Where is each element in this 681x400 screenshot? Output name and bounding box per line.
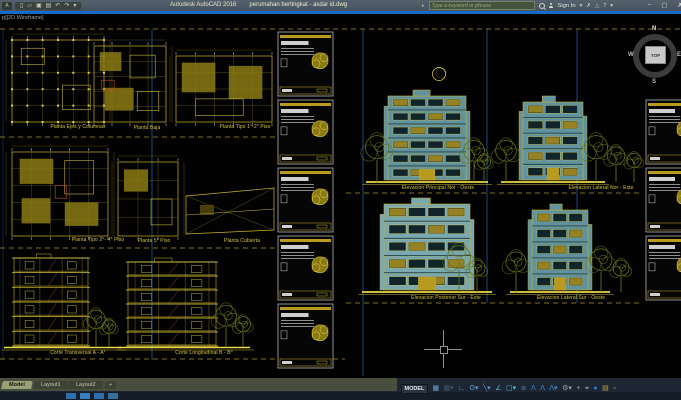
ribbon-strip: [0, 11, 681, 14]
grid-icon[interactable]: ▦: [432, 385, 439, 392]
user-icon: [549, 3, 554, 8]
infocenter-toggle-icon[interactable]: ▸: [422, 3, 425, 9]
save-icon[interactable]: ▣: [36, 2, 42, 10]
window-controls: – ▢ ✗: [648, 1, 680, 9]
window-title: Autodesk AutoCAD 2016perumahan bertingka…: [170, 2, 347, 8]
drawing-label: Planta Ejes y Columnas: [36, 124, 120, 130]
isolate-objects-icon[interactable]: ⌖: [585, 385, 589, 392]
drawing-label: Elevacion Lateral Nor - Este: [558, 185, 644, 191]
drawing-label: Elevacion Lateral Sur - Oeste: [526, 295, 616, 301]
document-title: perumahan bertingkat - asdar id.dwg: [249, 2, 347, 8]
search-icon[interactable]: [539, 3, 545, 9]
model-space-button[interactable]: MODEL: [401, 384, 428, 394]
plot-icon[interactable]: ▤: [46, 2, 52, 10]
taskbar-tile: [80, 393, 90, 399]
annotation-autoscale-icon[interactable]: Λ: [540, 385, 545, 392]
viewcube-east[interactable]: E: [677, 52, 681, 58]
workspace-switching-icon[interactable]: ⚙▾: [562, 385, 572, 392]
annotation-visibility-icon[interactable]: Λ: [531, 385, 536, 392]
object-snap-icon[interactable]: ▢▾: [506, 385, 516, 392]
tab-model[interactable]: Model: [1, 381, 33, 389]
viewcube-north[interactable]: N: [652, 26, 656, 32]
tab-layout1[interactable]: Layout1: [33, 381, 68, 389]
drawing-label: Planta Tipo 1°-2° Piso: [203, 124, 287, 130]
hardware-acceleration-icon[interactable]: ●: [593, 385, 597, 392]
object-snap-tracking-icon[interactable]: ∠: [495, 385, 501, 392]
crosshair-pickbox: [440, 346, 448, 354]
status-bar: Model Layout1 Layout2 + MODEL ▦ ▦▾ ∟ ʘ▾ …: [0, 378, 681, 400]
drawing-label: Planta Cubierta: [212, 238, 272, 244]
polar-tracking-icon[interactable]: ʘ▾: [470, 385, 479, 392]
clean-screen-icon[interactable]: ▫: [613, 385, 615, 392]
drawing-label: Elevacion Posterior Sur - Este: [402, 295, 490, 301]
drawing-canvas[interactable]: [0, 14, 681, 378]
layout-tab-bar: Model Layout1 Layout2 +: [0, 378, 397, 391]
autocad-window: p][2D Wireframe] Planta Ejes y Columnas …: [0, 0, 681, 400]
maximize-button[interactable]: ▢: [661, 1, 667, 9]
close-button[interactable]: ✗: [678, 1, 681, 9]
lineweight-icon[interactable]: ≣: [521, 385, 527, 392]
minimize-button[interactable]: –: [648, 1, 652, 9]
status-toggle-cluster: MODEL ▦ ▦▾ ∟ ʘ▾ ╲▾ ∠ ▢▾ ≣ Λ Λ Λ▾ ⚙▾ + ⌖ …: [398, 380, 619, 397]
viewcube[interactable]: TOP N W S E: [630, 26, 681, 90]
customization-icon[interactable]: +: [576, 385, 580, 392]
viewport-control-label[interactable]: p][2D Wireframe]: [2, 15, 44, 21]
title-bar: A ▯ ▱ ▣ ▤ ↶ ↷ ▾ Autodesk AutoCAD 2016per…: [0, 0, 681, 11]
quick-access-toolbar: ▯ ▱ ▣ ▤ ↶ ↷ ▾: [15, 2, 81, 10]
share-icon[interactable]: △: [595, 3, 599, 9]
open-file-icon[interactable]: ▱: [27, 2, 32, 10]
notification-icon[interactable]: ▤: [602, 385, 609, 392]
undo-icon[interactable]: ↶: [55, 2, 60, 10]
viewcube-south[interactable]: S: [652, 79, 656, 85]
viewcube-west[interactable]: W: [628, 52, 634, 58]
drawing-label: Planta 5° Piso: [126, 238, 182, 244]
taskbar-tile: [66, 393, 76, 399]
new-layout-button[interactable]: +: [104, 381, 117, 389]
snap-icon[interactable]: ▦▾: [444, 385, 454, 392]
sign-in-caret-icon[interactable]: ▾: [580, 3, 583, 9]
search-input[interactable]: [429, 1, 535, 10]
viewcube-top-face[interactable]: TOP: [645, 46, 666, 64]
drawing-label: Corte Longitudinal B - B°: [158, 350, 250, 356]
drawing-label: Planta Baja: [118, 125, 176, 131]
help-caret-icon[interactable]: ▾: [610, 3, 613, 9]
ortho-icon[interactable]: ∟: [458, 385, 465, 392]
drawing-label: Elevacion Principal Nor - Oeste: [392, 185, 484, 191]
drawing-label: Corte Transversal A - A°: [34, 350, 122, 356]
taskbar-tile: [94, 393, 104, 399]
isometric-drafting-icon[interactable]: ╲▾: [483, 385, 491, 392]
help-icon[interactable]: ?: [603, 3, 606, 9]
qat-dropdown-icon[interactable]: ▾: [73, 2, 76, 10]
new-file-icon[interactable]: ▯: [20, 2, 23, 10]
sign-in-button[interactable]: Sign In: [558, 3, 576, 9]
annotation-scale-icon[interactable]: Λ▾: [549, 385, 557, 392]
exchange-apps-icon[interactable]: ✗: [586, 3, 591, 9]
app-title: Autodesk AutoCAD 2016: [170, 2, 236, 8]
infocenter: ▸ Sign In ▾ ✗ △ ? ▾: [422, 1, 613, 10]
taskbar-tile: [108, 393, 118, 399]
tab-layout2[interactable]: Layout2: [69, 381, 104, 389]
redo-icon[interactable]: ↷: [64, 2, 69, 10]
app-menu-button[interactable]: A: [2, 2, 12, 10]
